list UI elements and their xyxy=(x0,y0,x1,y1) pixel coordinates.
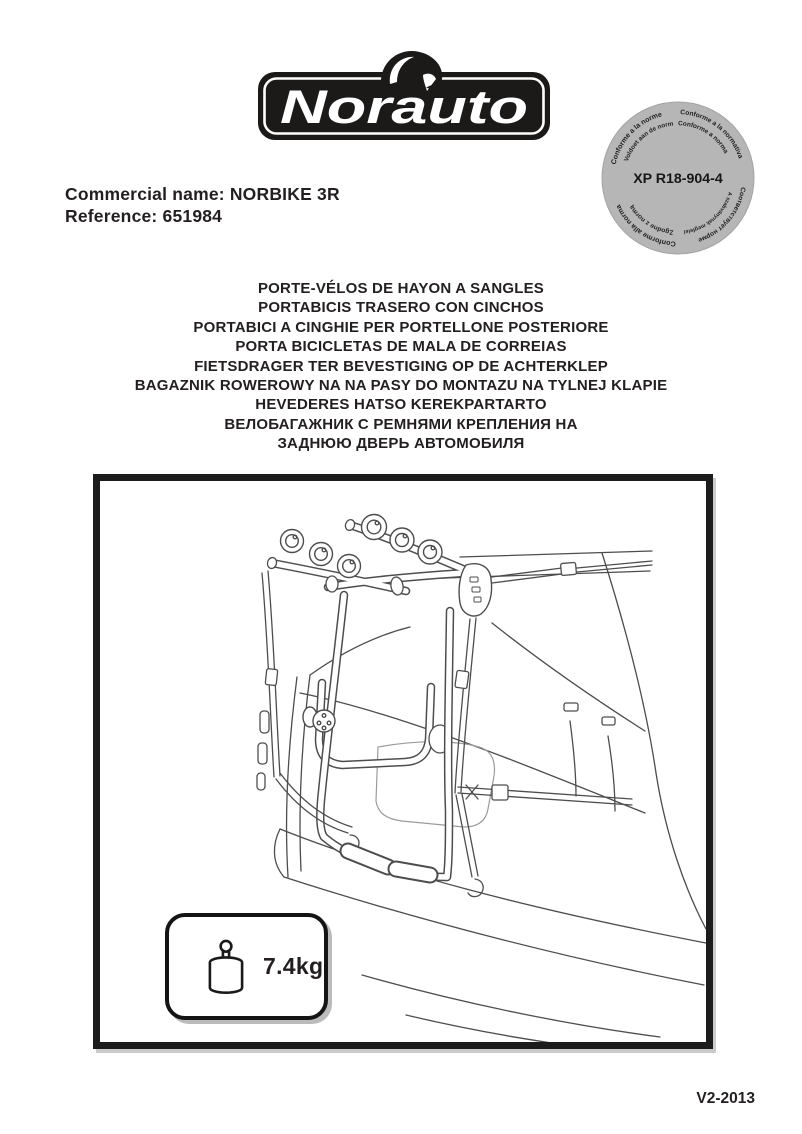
title-line-ru-2: ЗАДНЮЮ ДВЕРЬ АВТОМОБИЛЯ xyxy=(0,434,802,453)
reference-number: Reference: 651984 xyxy=(65,205,340,227)
rack-u-frame xyxy=(319,683,451,765)
logo-wordmark: Norauto xyxy=(280,80,528,133)
title-line-nl: FIETSDRAGER TER BEVESTIGING OP DE ACHTER… xyxy=(0,357,802,376)
foam-pads xyxy=(348,851,430,875)
commercial-name: Commercial name: NORBIKE 3R xyxy=(65,183,340,205)
rack-hinge-block xyxy=(459,564,492,616)
multilingual-titles: PORTE-VÉLOS DE HAYON A SANGLES PORTABICI… xyxy=(0,279,802,454)
title-line-fr: PORTE-VÉLOS DE HAYON A SANGLES xyxy=(0,279,802,298)
title-line-ru-1: ВЕЛОБАГАЖНИК С РЕМНЯМИ КРЕПЛЕНИЯ НА xyxy=(0,415,802,434)
title-line-pl: BAGAZNIK ROWEROWY NA NA PASY DO MONTAZU … xyxy=(0,376,802,395)
weight-info-box: 7.4kg xyxy=(165,913,328,1020)
title-line-es: PORTABICIS TRASERO CON CINCHOS xyxy=(0,298,802,317)
conformity-badge-graphic: Conforme a la norme Conforme a la normat… xyxy=(601,101,755,255)
title-line-it: PORTABICI A CINGHIE PER PORTELLONE POSTE… xyxy=(0,318,802,337)
illustration-frame: 7.4kg xyxy=(93,474,713,1049)
weight-icon xyxy=(203,938,249,996)
weight-value: 7.4kg xyxy=(263,953,323,980)
license-recess xyxy=(376,742,495,827)
manual-cover-page: Norauto Conforme a la norme Conforme a l… xyxy=(0,0,802,1134)
conformity-badge: Conforme a la norme Conforme a la normat… xyxy=(601,101,755,255)
badge-standard-code: XP R18-904-4 xyxy=(633,171,723,187)
product-identity: Commercial name: NORBIKE 3R Reference: 6… xyxy=(65,183,340,227)
document-version: V2-2013 xyxy=(640,1090,755,1108)
title-line-pt: PORTA BICICLETAS DE MALA DE CORREIAS xyxy=(0,337,802,356)
bumper xyxy=(274,829,706,1042)
norauto-logo-graphic: Norauto xyxy=(256,48,552,148)
title-line-hu: HEVEDERES HATSO KEREKPARTARTO xyxy=(0,395,802,414)
norauto-logo: Norauto xyxy=(256,48,552,148)
